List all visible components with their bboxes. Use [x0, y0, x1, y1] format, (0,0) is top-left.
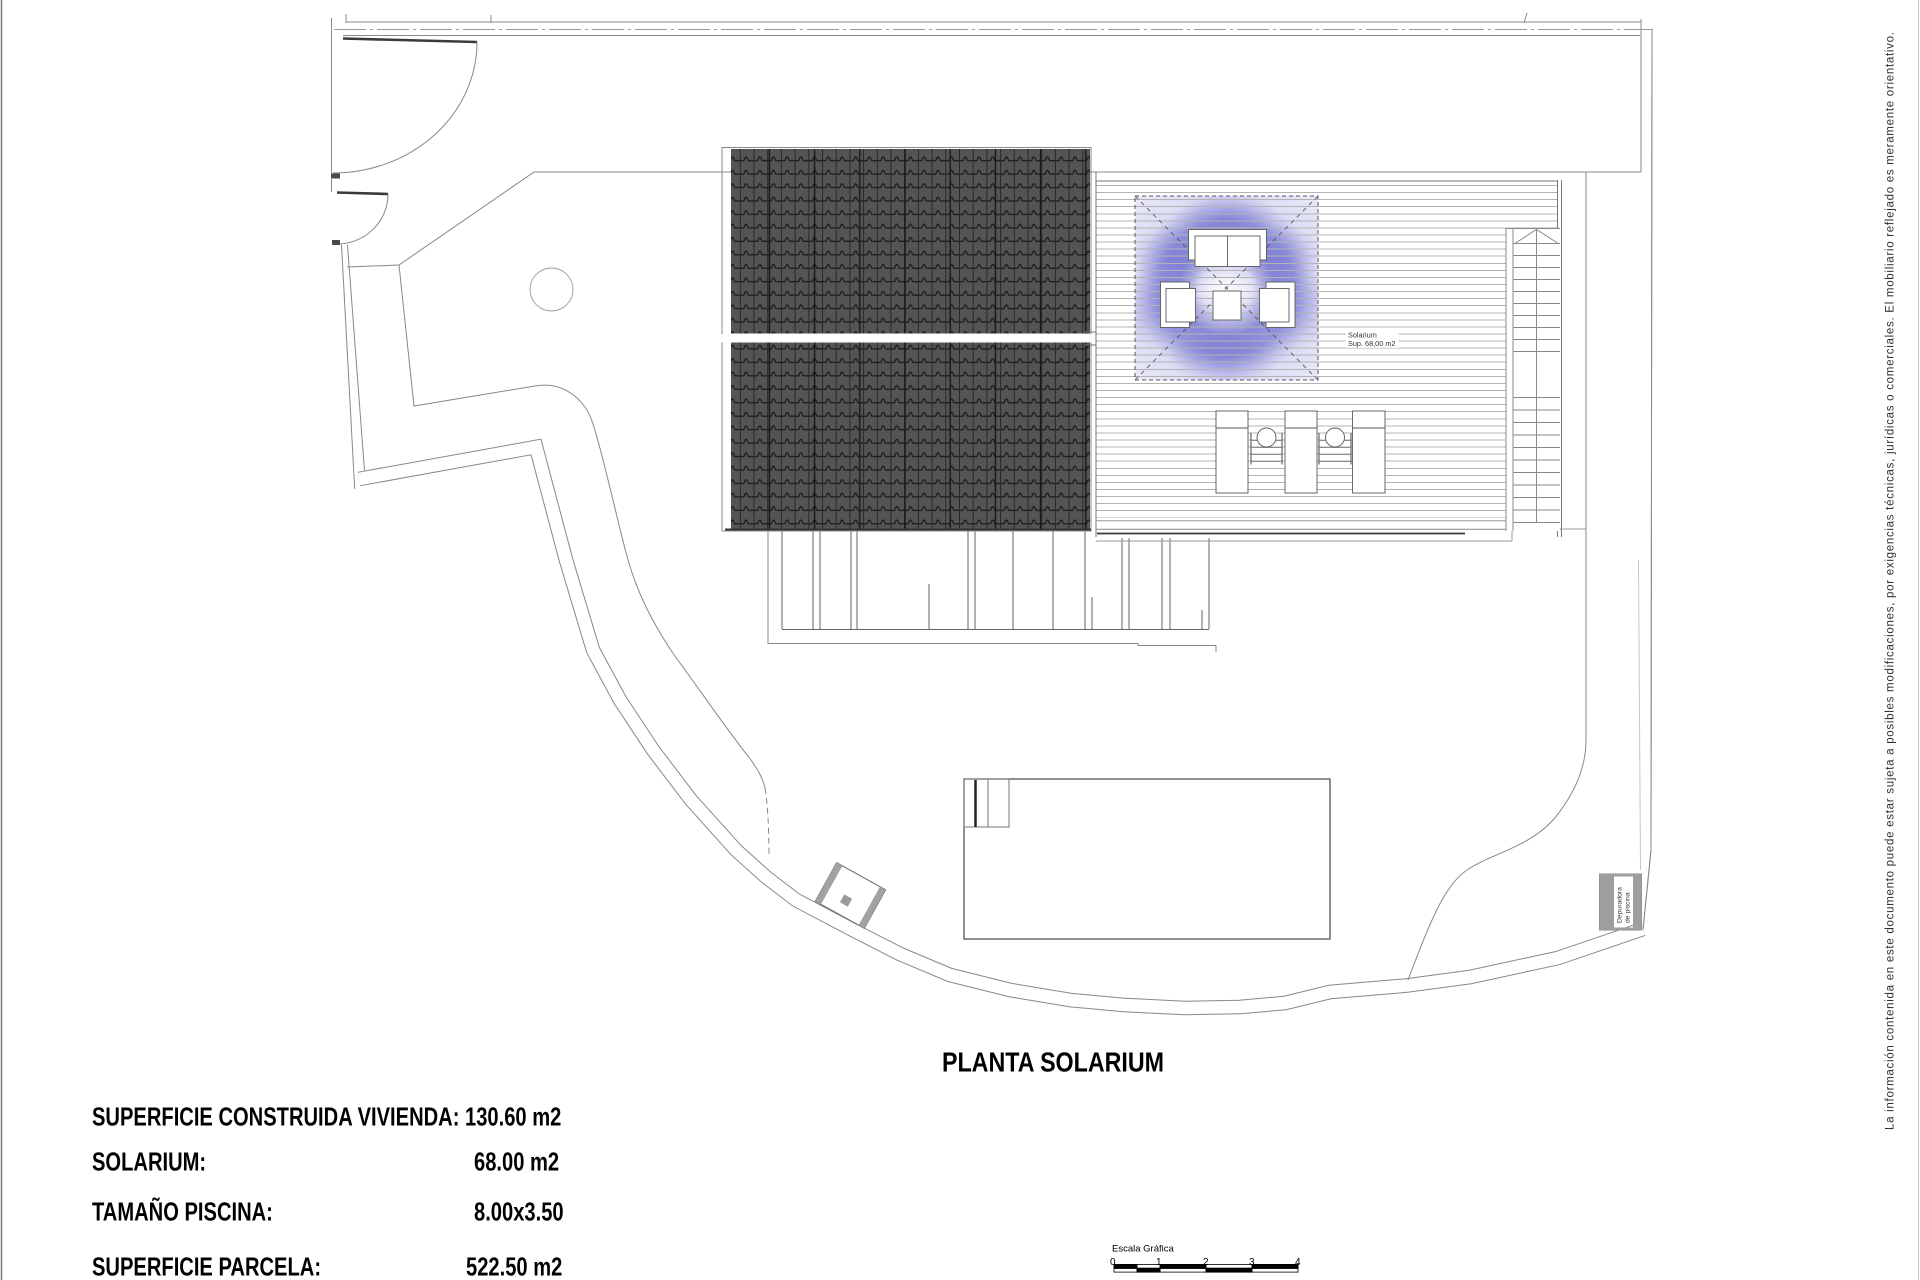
svg-text:1: 1 — [1156, 1257, 1162, 1268]
svg-text:2: 2 — [1203, 1257, 1209, 1268]
svg-text:Escala Gráfica: Escala Gráfica — [1112, 1244, 1174, 1255]
svg-text:SOLARIUM:: SOLARIUM: — [92, 1147, 206, 1176]
svg-text:TAMAÑO PISCINA:: TAMAÑO PISCINA: — [92, 1196, 273, 1226]
svg-text:PLANTA SOLARIUM: PLANTA SOLARIUM — [942, 1047, 1164, 1077]
svg-text:SUPERFICIE PARCELA:: SUPERFICIE PARCELA: — [92, 1252, 321, 1280]
svg-text:Depuradora: Depuradora — [1617, 887, 1624, 923]
svg-text:8.00x3.50: 8.00x3.50 — [474, 1197, 564, 1226]
svg-text:4: 4 — [1295, 1257, 1301, 1268]
svg-text:La información contenida en es: La información contenida en este documen… — [1885, 31, 1897, 1130]
svg-text:68.00 m2: 68.00 m2 — [474, 1147, 559, 1176]
svg-text:de piscina: de piscina — [1625, 892, 1632, 923]
svg-text:Sup. 68,00 m2: Sup. 68,00 m2 — [1348, 339, 1395, 348]
svg-text:3: 3 — [1249, 1257, 1255, 1268]
svg-text:522.50 m2: 522.50 m2 — [466, 1252, 562, 1280]
svg-text:0: 0 — [1110, 1257, 1116, 1268]
svg-text:SUPERFICIE CONSTRUIDA VIVIENDA: SUPERFICIE CONSTRUIDA VIVIENDA: 130.60 m… — [92, 1102, 561, 1131]
